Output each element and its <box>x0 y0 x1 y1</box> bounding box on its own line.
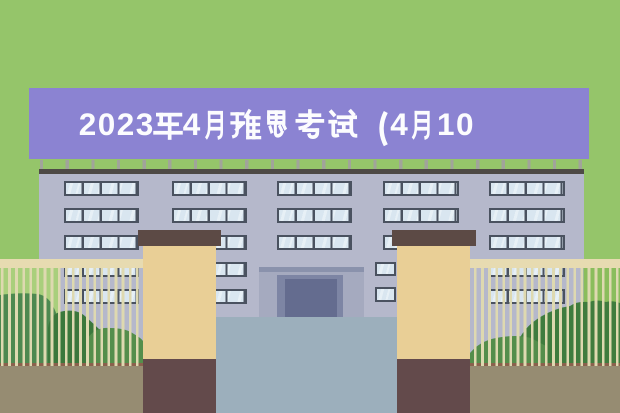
svg-text:2023: 2023 <box>79 106 155 142</box>
svg-text:10: 10 <box>437 106 475 142</box>
svg-text:4: 4 <box>390 106 409 142</box>
svg-text:4: 4 <box>183 106 202 142</box>
